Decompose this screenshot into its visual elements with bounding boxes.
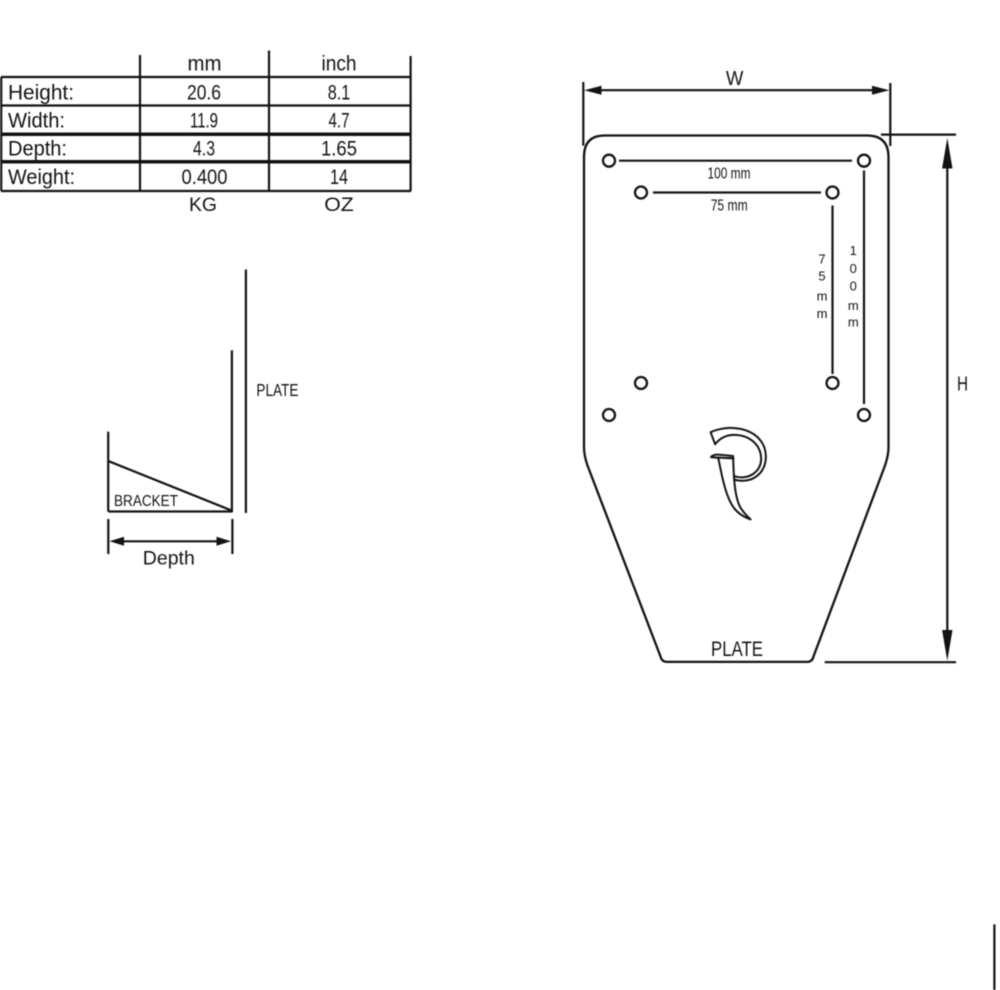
svg-text:inch: inch bbox=[322, 52, 357, 76]
svg-text:H: H bbox=[957, 372, 968, 395]
svg-text:1.65: 1.65 bbox=[321, 137, 357, 161]
svg-text:0: 0 bbox=[850, 279, 857, 294]
svg-text:5: 5 bbox=[818, 269, 825, 284]
svg-text:m: m bbox=[848, 298, 859, 313]
svg-text:Depth:: Depth: bbox=[8, 137, 67, 161]
svg-text:m: m bbox=[848, 315, 859, 330]
svg-text:100 mm: 100 mm bbox=[708, 166, 751, 183]
svg-text:0.400: 0.400 bbox=[182, 165, 228, 189]
svg-text:Height:: Height: bbox=[8, 80, 74, 104]
svg-text:W: W bbox=[726, 67, 744, 90]
svg-text:75 mm: 75 mm bbox=[711, 198, 748, 215]
svg-text:14: 14 bbox=[330, 165, 348, 189]
svg-text:BRACKET: BRACKET bbox=[114, 493, 178, 510]
svg-text:OZ: OZ bbox=[324, 194, 354, 216]
svg-text:m: m bbox=[817, 306, 828, 321]
svg-text:mm: mm bbox=[188, 52, 222, 76]
svg-text:4.3: 4.3 bbox=[193, 137, 215, 161]
svg-text:KG: KG bbox=[189, 194, 217, 216]
svg-text:20.6: 20.6 bbox=[187, 80, 221, 104]
svg-text:0: 0 bbox=[850, 261, 857, 276]
svg-text:Width:: Width: bbox=[8, 109, 65, 133]
svg-text:11.9: 11.9 bbox=[190, 109, 218, 133]
svg-text:7: 7 bbox=[818, 251, 825, 266]
svg-text:Weight:: Weight: bbox=[8, 165, 75, 189]
svg-text:8.1: 8.1 bbox=[328, 80, 351, 104]
svg-text:PLATE: PLATE bbox=[711, 637, 763, 661]
svg-text:m: m bbox=[817, 289, 828, 304]
svg-text:1: 1 bbox=[850, 243, 857, 258]
svg-text:Depth: Depth bbox=[143, 548, 195, 569]
svg-text:PLATE: PLATE bbox=[256, 380, 298, 400]
svg-text:4.7: 4.7 bbox=[329, 109, 350, 133]
